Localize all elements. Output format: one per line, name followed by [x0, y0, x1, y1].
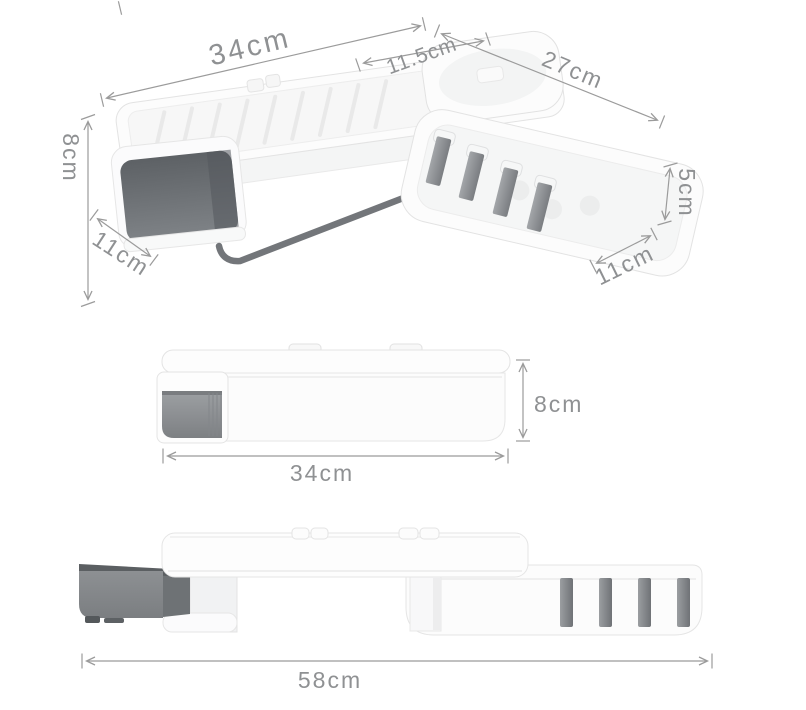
- divider-tab: [311, 528, 328, 539]
- drawer-illustration: [110, 135, 248, 253]
- divider-tab: [420, 528, 439, 539]
- slot-hook: [638, 578, 651, 627]
- clip-tab: [247, 78, 265, 92]
- front-extended-view: 58cm: [79, 528, 712, 693]
- slot-hook: [560, 578, 573, 627]
- dimension-label: 58cm: [298, 667, 362, 693]
- divider-tab: [292, 528, 309, 539]
- dim-extended-width: 58cm: [82, 654, 712, 694]
- clip-tab: [265, 74, 281, 88]
- dimension-label: 8cm: [534, 391, 583, 417]
- product-dimension-diagram: 34cm 11.5cm 27cm 8cm 11cm: [0, 0, 806, 710]
- dimension-label: 8cm: [58, 133, 84, 182]
- drawer-foot: [104, 618, 124, 623]
- dim-folded-height: 8cm: [516, 360, 583, 441]
- perspective-view: 34cm 11.5cm 27cm 8cm 11cm: [58, 1, 709, 306]
- drawer-foot: [85, 616, 100, 623]
- extended-tray-illustration: [162, 528, 528, 577]
- drawer-front-illustration: [157, 372, 228, 443]
- pivot-joint-illustration: [410, 577, 441, 631]
- dimension-label: 34cm: [290, 460, 354, 486]
- dim-tray-height: 8cm: [58, 115, 95, 307]
- front-folded-view: 34cm 8cm: [157, 344, 583, 486]
- dimension-label: 5cm: [674, 168, 700, 217]
- slot-hook: [677, 578, 690, 627]
- divider-tab: [399, 528, 418, 539]
- dim-folded-width: 34cm: [163, 449, 508, 487]
- slot-hook: [599, 578, 612, 627]
- diagram-canvas: 34cm 11.5cm 27cm 8cm 11cm: [0, 0, 806, 710]
